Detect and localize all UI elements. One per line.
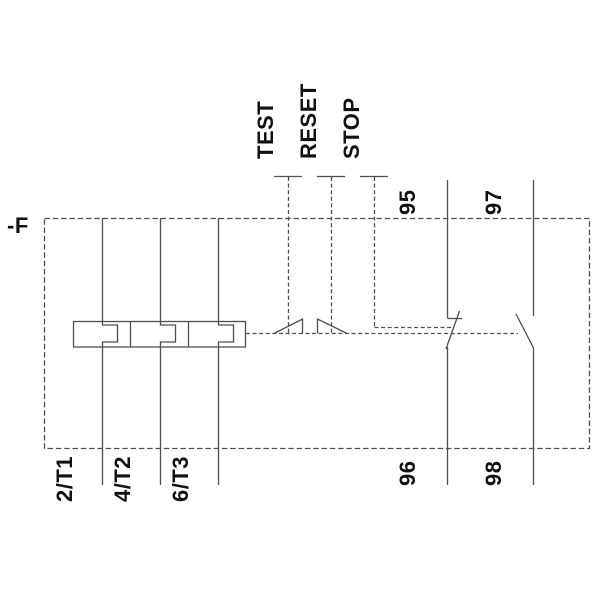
test-button-label: TEST	[254, 101, 278, 159]
device-designation-label: -F	[7, 214, 29, 238]
no-contact-arm	[516, 314, 534, 348]
phase-conductor-t3	[219, 218, 234, 485]
trip-latch-right	[318, 319, 348, 334]
phase-conductor-t1	[103, 218, 118, 485]
terminal-96-label: 96	[396, 461, 420, 486]
terminal-6t3-label: 6/T3	[169, 456, 193, 502]
overload-relay-wiring-diagram: -F TEST RESET STOP 95 97 96 98 2/T1 4/T2…	[0, 0, 600, 600]
reset-button-label: RESET	[297, 83, 321, 159]
thermal-element-dividers	[131, 322, 189, 348]
terminal-4t2-label: 4/T2	[111, 456, 135, 502]
no-contact-97-98	[516, 180, 534, 485]
terminal-98-label: 98	[482, 461, 506, 486]
nc-contact-95-96	[446, 180, 462, 485]
terminal-2t1-label: 2/T1	[53, 456, 77, 502]
terminal-95-label: 95	[396, 190, 420, 215]
terminal-97-label: 97	[482, 190, 506, 215]
stop-button-label: STOP	[340, 97, 364, 159]
phase-conductor-t2	[161, 218, 176, 485]
